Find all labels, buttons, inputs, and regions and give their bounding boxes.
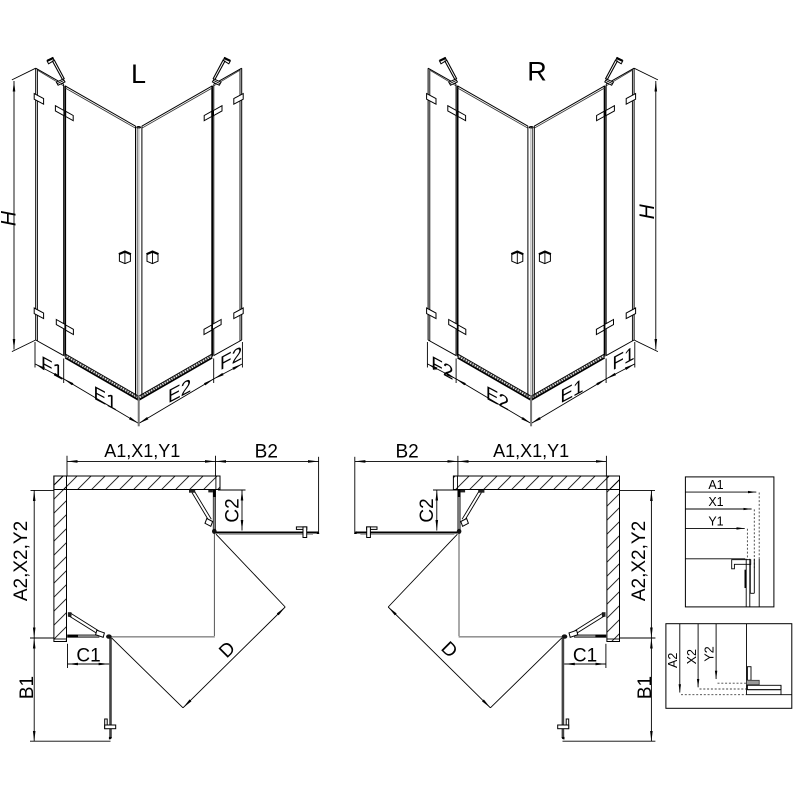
svg-text:R: R xyxy=(527,57,547,87)
svg-text:B2: B2 xyxy=(255,442,278,463)
svg-text:B1: B1 xyxy=(17,676,38,699)
svg-text:C1: C1 xyxy=(573,646,597,667)
svg-text:C1: C1 xyxy=(76,646,100,667)
svg-text:H: H xyxy=(636,203,659,219)
svg-text:C2: C2 xyxy=(223,498,244,522)
svg-text:E2: E2 xyxy=(486,383,509,416)
svg-text:E1: E1 xyxy=(94,383,117,416)
svg-text:X2: X2 xyxy=(685,649,699,664)
svg-text:A1,X1,Y1: A1,X1,Y1 xyxy=(493,441,569,461)
svg-text:A2: A2 xyxy=(666,653,680,668)
svg-text:B1: B1 xyxy=(635,676,656,699)
svg-text:Y2: Y2 xyxy=(703,646,717,661)
svg-text:A1,X1,Y1: A1,X1,Y1 xyxy=(104,441,180,461)
svg-text:A2,X2,Y2: A2,X2,Y2 xyxy=(11,521,32,601)
svg-text:X1: X1 xyxy=(708,495,723,509)
svg-text:L: L xyxy=(131,59,146,89)
svg-text:B2: B2 xyxy=(395,442,418,463)
svg-text:F2: F2 xyxy=(431,353,453,385)
svg-text:D: D xyxy=(215,638,240,663)
svg-text:F1: F1 xyxy=(41,353,63,385)
svg-text:A1: A1 xyxy=(708,478,723,492)
svg-text:C2: C2 xyxy=(417,498,438,522)
svg-text:A2,X2,Y2: A2,X2,Y2 xyxy=(629,521,650,601)
svg-text:H: H xyxy=(0,210,20,226)
svg-text:Y1: Y1 xyxy=(708,514,723,528)
